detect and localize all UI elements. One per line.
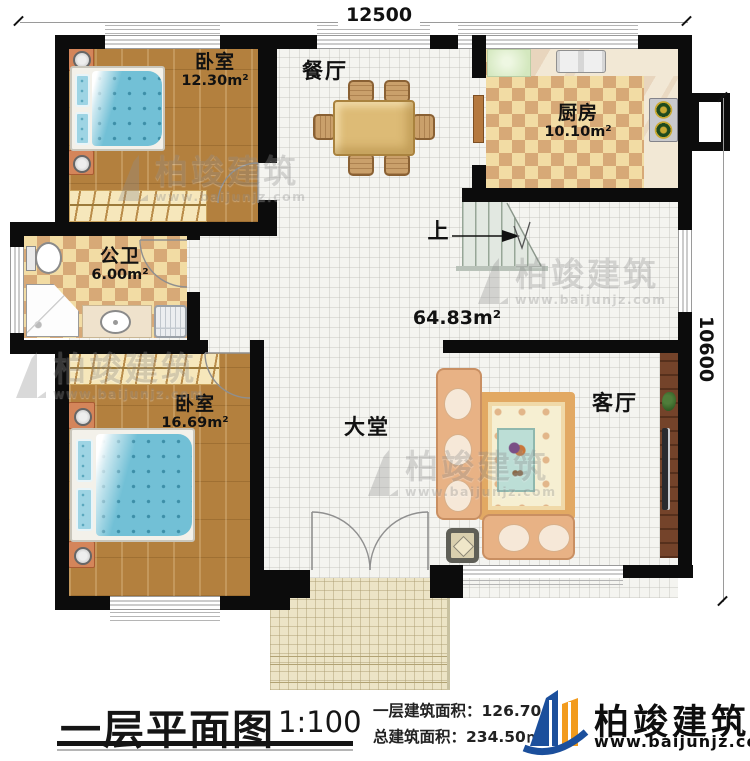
bedroom-top-area: 12.30m² (165, 73, 265, 89)
bathroom-label: 公卫 6.00m² (85, 246, 155, 284)
dining-label: 餐厅 (290, 60, 360, 84)
floor-plan-page: 卧室 12.30m² 餐厅 厨房 10.10m² 公卫 6.00m² 上 64.… (0, 0, 750, 761)
bedroom-top-name: 卧室 (165, 52, 265, 73)
door-swings-overlay (0, 0, 750, 761)
kitchen-area: 10.10m² (528, 124, 628, 140)
title-underline-thin (57, 749, 353, 751)
dining-name: 餐厅 (290, 60, 360, 84)
open-area-label: 64.83m² (412, 308, 502, 329)
dimension-right-value: 10600 (695, 305, 717, 393)
stairs-up-label: 上 (424, 220, 454, 244)
hall-label: 大堂 (332, 416, 402, 440)
kitchen-name: 厨房 (528, 103, 628, 124)
plan-scale: 1:100 (278, 705, 362, 739)
dimension-top-value: 12500 (338, 4, 420, 26)
kitchen-label: 厨房 10.10m² (528, 103, 628, 141)
bedroom-top-label: 卧室 12.30m² (165, 52, 265, 90)
title-underline (57, 741, 353, 746)
brand-logo-icon (516, 688, 594, 758)
living-name: 客厅 (580, 392, 650, 416)
open-area-value: 64.83m² (413, 307, 501, 329)
stairs-direction: 上 (424, 220, 454, 244)
brand-url: www.baijunjz.com (594, 732, 750, 751)
hall-name: 大堂 (332, 416, 402, 440)
bathroom-area: 6.00m² (85, 267, 155, 283)
bedroom-bottom-label: 卧室 16.69m² (145, 394, 245, 432)
bedroom-bottom-area: 16.69m² (145, 415, 245, 431)
bedroom-bottom-name: 卧室 (145, 394, 245, 415)
dimension-line-right (723, 98, 724, 602)
living-label: 客厅 (580, 392, 650, 416)
plan-title: 一层平面图 (60, 696, 275, 756)
bathroom-name: 公卫 (85, 246, 155, 267)
